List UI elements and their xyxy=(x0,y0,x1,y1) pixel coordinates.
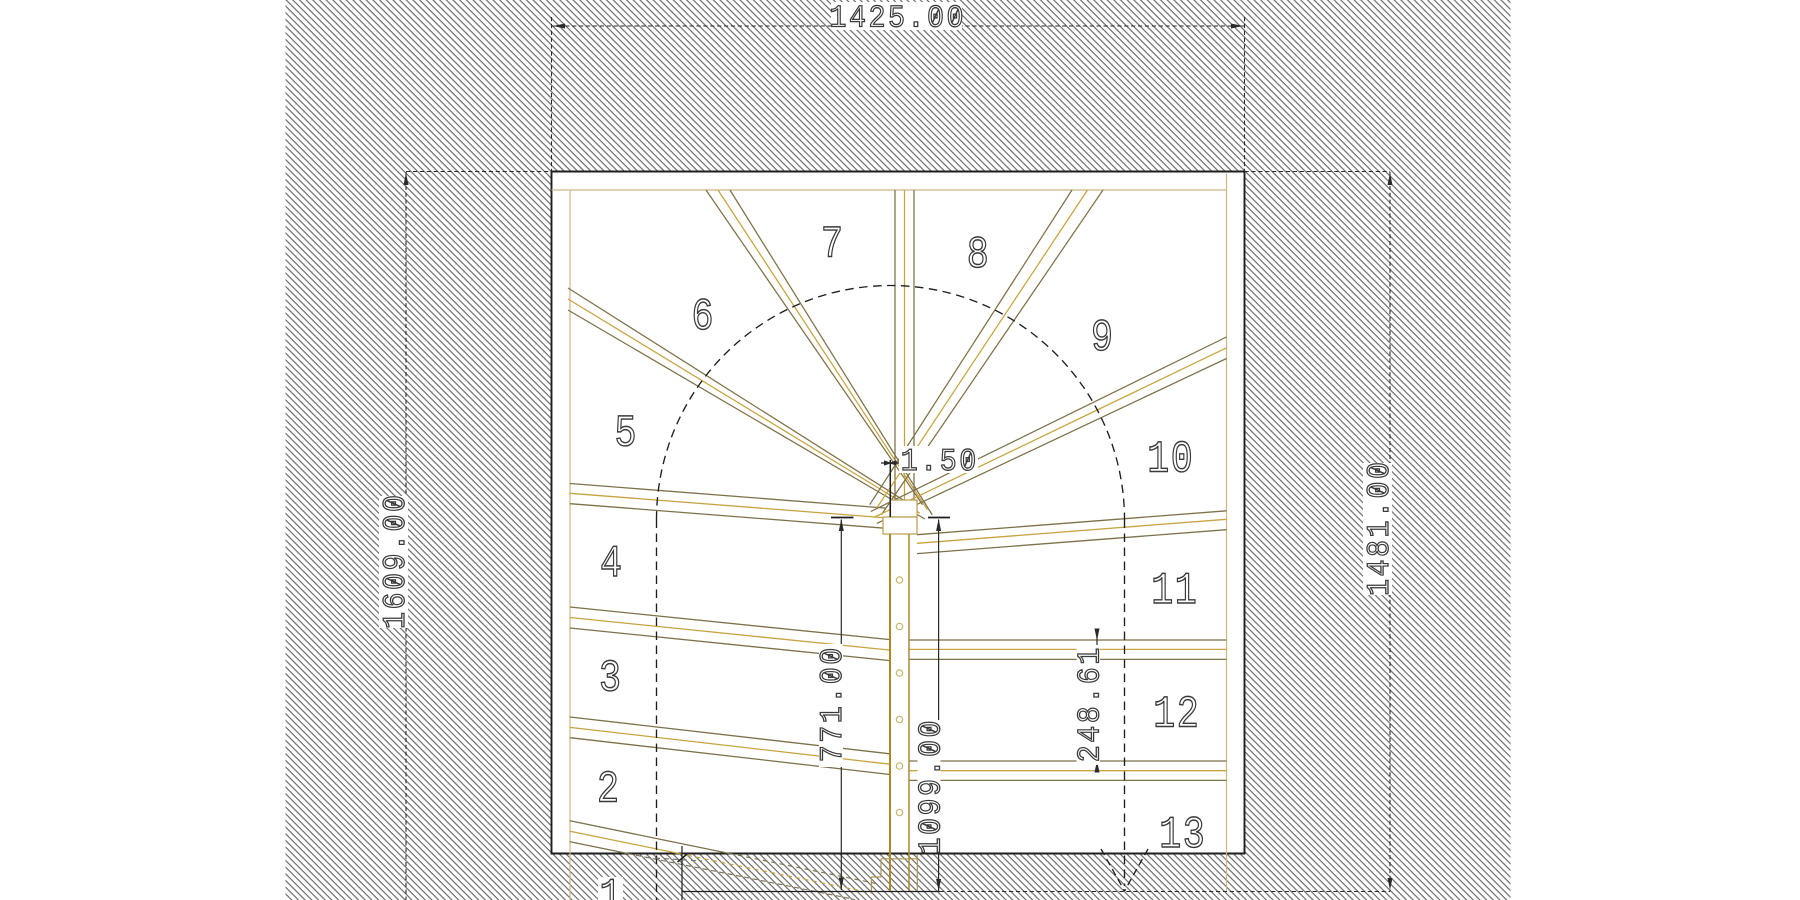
svg-text:0: 0 xyxy=(816,648,851,665)
svg-text:0: 0 xyxy=(379,573,414,590)
svg-text:0: 0 xyxy=(959,445,976,480)
svg-text:2: 2 xyxy=(1073,745,1108,762)
svg-text:1: 1 xyxy=(1153,690,1175,741)
svg-text:1: 1 xyxy=(1363,579,1398,596)
svg-text:1: 1 xyxy=(1175,566,1197,617)
svg-text:4: 4 xyxy=(600,539,622,590)
svg-text:7: 7 xyxy=(816,745,851,762)
svg-text:8: 8 xyxy=(967,230,989,281)
svg-text:8: 8 xyxy=(1363,540,1398,557)
svg-text:0: 0 xyxy=(379,515,414,532)
svg-text:2: 2 xyxy=(1177,690,1199,741)
svg-text:9: 9 xyxy=(379,554,414,571)
svg-text:3: 3 xyxy=(599,654,621,705)
svg-text:.: . xyxy=(919,445,938,480)
svg-text:2: 2 xyxy=(597,765,619,816)
svg-text:5: 5 xyxy=(940,445,957,480)
svg-text:0: 0 xyxy=(914,740,949,757)
svg-text:1: 1 xyxy=(1159,810,1181,861)
svg-text:4: 4 xyxy=(1363,560,1398,577)
svg-text:.: . xyxy=(1363,500,1398,519)
svg-text:1: 1 xyxy=(1151,566,1173,617)
svg-text:6: 6 xyxy=(1073,667,1108,684)
svg-text:.: . xyxy=(1073,686,1108,705)
svg-text:1: 1 xyxy=(1073,648,1108,665)
svg-text:8: 8 xyxy=(1073,706,1108,723)
svg-text:3: 3 xyxy=(1183,810,1205,861)
svg-text:.: . xyxy=(914,759,949,778)
svg-text:5: 5 xyxy=(888,1,905,36)
svg-text:0: 0 xyxy=(947,1,964,36)
svg-text:0: 0 xyxy=(1363,482,1398,499)
svg-text:1: 1 xyxy=(1363,521,1398,538)
svg-text:7: 7 xyxy=(816,726,851,743)
svg-text:2: 2 xyxy=(869,1,886,36)
svg-text:0: 0 xyxy=(1171,435,1193,486)
svg-text:.: . xyxy=(907,1,926,36)
svg-text:4: 4 xyxy=(1073,726,1108,743)
svg-text:9: 9 xyxy=(914,779,949,796)
svg-text:9: 9 xyxy=(914,799,949,816)
svg-text:1: 1 xyxy=(901,445,918,480)
svg-text:0: 0 xyxy=(379,495,414,512)
svg-text:0: 0 xyxy=(1363,462,1398,479)
svg-text:1: 1 xyxy=(830,1,847,36)
svg-text:6: 6 xyxy=(692,292,714,343)
svg-text:.: . xyxy=(379,533,414,552)
svg-text:1: 1 xyxy=(816,706,851,723)
svg-text:0: 0 xyxy=(927,1,944,36)
svg-text:7: 7 xyxy=(821,220,843,271)
svg-text:1: 1 xyxy=(1147,435,1169,486)
svg-text:0: 0 xyxy=(914,721,949,738)
svg-text:4: 4 xyxy=(849,1,866,36)
svg-text:1: 1 xyxy=(600,872,622,900)
svg-text:9: 9 xyxy=(1091,313,1113,364)
svg-text:0: 0 xyxy=(914,818,949,835)
svg-text:6: 6 xyxy=(379,593,414,610)
svg-text:1: 1 xyxy=(914,838,949,855)
svg-text:.: . xyxy=(816,686,851,705)
svg-text:5: 5 xyxy=(615,409,637,460)
svg-text:1: 1 xyxy=(379,612,414,629)
svg-text:0: 0 xyxy=(816,667,851,684)
